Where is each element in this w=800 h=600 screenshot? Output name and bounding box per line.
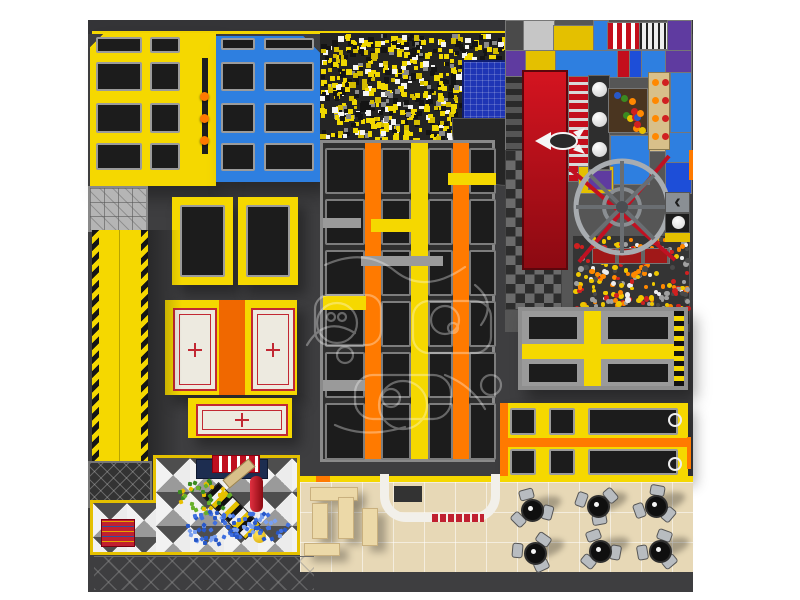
foam-cube	[351, 123, 355, 127]
foam-cube	[455, 51, 459, 55]
foam-cube	[355, 122, 359, 126]
trampoline-bed	[246, 205, 290, 277]
foam-cube	[417, 50, 421, 54]
main-court	[320, 140, 495, 462]
orange-ball	[200, 92, 209, 101]
foam-cube	[449, 49, 453, 53]
foam-cube	[325, 56, 329, 60]
foam-cube	[381, 102, 387, 108]
foam-cube	[430, 89, 434, 93]
trampoline-bed	[381, 403, 411, 460]
abacus-panel	[648, 72, 670, 150]
foam-cube	[402, 92, 407, 97]
pit-ball	[671, 279, 676, 284]
trampoline-bed	[588, 449, 678, 475]
foam-cube	[397, 51, 403, 57]
trampoline-bed	[549, 408, 575, 435]
foam-cube	[400, 45, 405, 50]
foam-cube	[428, 114, 432, 118]
foam-cube	[441, 106, 445, 110]
foam-cube	[343, 134, 347, 138]
foam-cube	[410, 94, 414, 98]
pit-ball	[654, 271, 659, 276]
foam-cube	[386, 99, 390, 103]
pit-ball	[652, 282, 656, 286]
pit-ball	[601, 302, 606, 307]
trampoline-bed	[150, 62, 180, 91]
foam-cube	[321, 69, 326, 74]
foam-cube	[425, 53, 429, 57]
trampoline-bed	[469, 403, 496, 460]
foam-cube	[338, 36, 344, 42]
foam-bit	[237, 517, 242, 522]
foam-cube	[438, 96, 444, 102]
crossing-pad-gray	[323, 218, 361, 228]
pit-ball	[578, 285, 583, 290]
pit-ball	[625, 292, 630, 297]
trampoline-bed	[381, 301, 411, 347]
trampoline-bed	[150, 103, 180, 133]
trampoline-bed	[381, 148, 411, 194]
foam-cube	[426, 130, 431, 135]
pit-ball	[589, 269, 594, 274]
foam-cube	[330, 76, 335, 81]
pit-ball	[630, 279, 634, 283]
play-panel-stripe-red	[607, 22, 641, 50]
foam-cube	[403, 75, 408, 80]
color-ball	[634, 121, 641, 128]
court-cross	[266, 349, 280, 351]
pit-ball	[667, 283, 672, 288]
foam-cube	[371, 77, 375, 81]
pit-ball	[685, 247, 689, 251]
trampoline-bed	[221, 143, 255, 171]
pit-ball	[618, 290, 623, 295]
court-beam-orange	[365, 143, 381, 459]
foam-cube	[350, 82, 356, 88]
foam-cube	[321, 44, 326, 49]
foam-cube	[353, 49, 357, 53]
foam-cube	[450, 95, 454, 99]
foam-cube	[346, 114, 351, 119]
foam-cube	[441, 42, 447, 48]
trampoline-bed	[264, 143, 314, 171]
foam-cube	[364, 50, 369, 55]
foam-cube	[391, 78, 396, 83]
bench	[362, 508, 378, 546]
foam-cube	[360, 130, 365, 135]
foam-cube	[441, 110, 445, 114]
foam-cube	[492, 41, 496, 45]
pit-ball	[630, 287, 634, 291]
abacus-bead	[662, 97, 669, 104]
pit-ball	[619, 283, 624, 288]
foam-cube	[335, 115, 339, 119]
trampoline-bed	[96, 37, 142, 53]
foam-cube	[421, 40, 426, 45]
pit-ball	[664, 296, 669, 301]
foam-bit	[252, 520, 257, 525]
bench	[338, 497, 354, 539]
trampoline-bed	[221, 38, 255, 50]
anchor-ring	[668, 413, 682, 427]
foam-cube	[333, 91, 338, 96]
foam-cube	[338, 131, 343, 136]
foam-cube	[383, 34, 387, 38]
foam-cube	[359, 38, 364, 43]
foam-cube	[341, 60, 347, 66]
orange-ball	[200, 114, 209, 123]
trampoline-bed	[549, 449, 575, 475]
foam-cube	[361, 101, 365, 105]
foam-cube	[404, 135, 408, 139]
pit-ball	[584, 275, 588, 279]
foam-cube	[451, 38, 457, 44]
pit-ball	[641, 301, 645, 305]
hazard-chevron-strip	[141, 230, 148, 463]
foam-cube	[345, 83, 349, 87]
crossing-pad-yellow	[448, 173, 496, 185]
foam-cube	[347, 50, 351, 54]
trampoline-bed	[325, 250, 365, 296]
foam-cube	[375, 72, 380, 77]
pit-ball	[661, 284, 666, 289]
abacus-bead	[652, 133, 659, 140]
foam-cube	[404, 42, 409, 47]
foam-cube	[346, 34, 351, 39]
trampoline-bed	[150, 37, 180, 53]
foam-cube	[323, 61, 327, 65]
chevron-left-icon: ‹	[665, 192, 690, 213]
pit-ball	[576, 272, 581, 277]
abacus-bead	[652, 97, 659, 104]
trampoline-bed	[469, 250, 496, 296]
foam-cube	[370, 100, 374, 104]
color-ball	[629, 98, 636, 105]
bench	[304, 543, 340, 556]
pit-ball	[648, 273, 653, 278]
foam-bit	[218, 493, 222, 497]
foam-cube	[487, 47, 492, 52]
foam-cube	[333, 41, 338, 46]
pit-ball	[685, 271, 690, 276]
trampoline-bed	[96, 62, 142, 91]
foam-cube	[388, 47, 393, 52]
foam-cube	[349, 96, 354, 101]
orange-beam	[508, 438, 688, 447]
color-ball-panel	[608, 88, 648, 133]
foam-cube	[432, 125, 438, 131]
rocket-decoration	[533, 124, 585, 158]
square-trampoline	[238, 197, 298, 285]
trampoline-bed	[428, 148, 453, 194]
foam-cube	[384, 77, 390, 83]
foam-cube	[404, 125, 410, 131]
foam-cube	[450, 59, 454, 63]
dodgeball-court	[251, 308, 295, 391]
foam-cube	[338, 105, 343, 110]
foam-cube	[328, 68, 332, 72]
walkway-shadow	[148, 230, 182, 470]
foam-cube	[346, 69, 351, 74]
trampoline-bed	[264, 38, 314, 50]
pit-ball	[680, 256, 684, 260]
foam-cube	[423, 93, 428, 98]
foam-bit	[241, 525, 246, 530]
fence-crosshatch	[94, 556, 314, 590]
foam-bit	[213, 516, 217, 520]
foam-cube	[379, 111, 383, 115]
foam-cube	[327, 46, 331, 50]
foam-cube	[371, 88, 376, 93]
sphere	[592, 112, 607, 127]
foam-cube	[419, 128, 423, 132]
sphere	[592, 82, 607, 97]
hazard-chevron-strip	[92, 230, 99, 463]
foam-cube	[492, 55, 496, 59]
foam-cube	[334, 47, 339, 52]
pit-ball	[599, 278, 603, 282]
foam-cube	[425, 104, 429, 108]
play-wheel	[565, 150, 679, 264]
foam-cube	[408, 37, 412, 41]
foam-cube	[340, 116, 345, 121]
foam-cube	[388, 93, 393, 98]
foam-cube	[429, 38, 434, 43]
trampoline-bed	[469, 352, 496, 398]
foam-cube	[344, 55, 349, 60]
trampoline-bed	[469, 301, 496, 347]
foam-cube	[320, 134, 325, 139]
foam-cube	[385, 70, 391, 76]
foam-cube	[382, 84, 388, 90]
pit-ball	[625, 297, 630, 302]
foam-cube	[384, 116, 389, 121]
foam-cube	[414, 35, 419, 40]
foam-cube	[472, 41, 478, 47]
pit-ball	[664, 291, 670, 297]
pit-ball	[659, 295, 663, 299]
foam-cube	[362, 79, 367, 84]
trampoline-bed	[96, 103, 142, 133]
pit-ball	[583, 265, 589, 271]
pit-ball	[612, 265, 617, 270]
color-ball	[614, 92, 621, 99]
court-beam-yellow	[411, 143, 428, 459]
abacus-bead	[662, 133, 669, 140]
foam-bit	[188, 482, 192, 486]
foam-cube	[351, 40, 355, 44]
foam-cube	[381, 131, 386, 136]
trampoline-bed	[428, 352, 453, 398]
foam-cube	[423, 61, 429, 67]
foam-cube	[344, 128, 348, 132]
pit-ball	[604, 270, 609, 275]
pit-ball	[683, 292, 688, 297]
foam-cube	[377, 84, 381, 88]
trampoline-bed	[606, 315, 670, 341]
dodgeball-court	[196, 404, 288, 436]
play-panel-blue	[670, 72, 692, 134]
bench	[312, 503, 328, 539]
trampoline-bed	[381, 352, 411, 398]
foam-cube	[321, 114, 325, 118]
trampoline-bed	[428, 199, 453, 245]
foam-cube	[411, 109, 415, 113]
foam-cube	[450, 64, 454, 68]
foam-cube	[395, 89, 400, 94]
trampoline-bed	[527, 315, 579, 341]
foam-cube	[368, 37, 373, 42]
trampoline-bed	[221, 62, 255, 91]
foam-cube	[434, 106, 439, 111]
pit-ball	[650, 302, 654, 306]
trampoline-bed	[527, 362, 579, 384]
crossing-pad-gray	[361, 256, 443, 266]
foam-cube	[430, 117, 435, 122]
foam-cube	[354, 106, 358, 110]
foam-cube	[357, 71, 362, 76]
foam-cube	[391, 119, 396, 124]
yellow-walkway	[92, 230, 148, 463]
foam-cube	[365, 88, 369, 92]
trampoline-bed	[325, 403, 365, 460]
foam-cube	[365, 105, 371, 111]
hazard-strip	[674, 311, 684, 386]
foam-cube	[392, 69, 397, 74]
blue-trampoline-block	[216, 36, 320, 182]
pit-ball	[685, 299, 690, 304]
foam-cube	[358, 114, 364, 120]
dodgeball-court-horizontal	[188, 398, 292, 438]
pit-ball	[606, 299, 611, 304]
foam-cube	[353, 128, 358, 133]
orange-ball	[200, 136, 209, 145]
foam-cube	[455, 41, 460, 46]
yellow-step	[665, 233, 690, 242]
foam-cube	[411, 76, 416, 81]
mascot-head	[672, 216, 685, 229]
foam-cube	[498, 48, 502, 52]
foam-cube	[355, 90, 359, 94]
foam-cube	[431, 67, 436, 72]
scaffold-platform-top	[88, 186, 148, 232]
foam-bit	[235, 535, 239, 539]
foam-cube	[465, 38, 470, 43]
dodgeball-courts	[165, 300, 297, 395]
foam-cube	[445, 102, 451, 108]
foam-bit	[196, 486, 200, 490]
foam-cube	[398, 69, 402, 73]
foam-cube	[438, 48, 442, 52]
foam-cube	[344, 109, 348, 113]
render-canvas: ‹	[0, 0, 800, 600]
foam-cube	[336, 85, 341, 90]
orange-divider	[219, 300, 245, 395]
foam-cube	[396, 126, 400, 130]
door-marker	[689, 150, 693, 180]
foam-cube	[326, 135, 330, 139]
foam-cube	[345, 87, 350, 92]
pit-ball	[626, 272, 630, 276]
pit-ball	[649, 295, 655, 301]
abacus-bead	[662, 115, 669, 122]
foam-cube	[444, 54, 449, 59]
pit-ball	[611, 281, 616, 286]
foam-cube	[462, 49, 466, 53]
trampoline-bed	[325, 148, 365, 194]
foam-cube	[440, 121, 444, 125]
yellow-trampoline-block	[90, 33, 216, 186]
foam-cube	[455, 87, 459, 91]
pit-ball	[616, 301, 621, 306]
foam-cube	[402, 61, 407, 66]
trampoline-bed	[221, 103, 255, 133]
foam-cube	[478, 45, 483, 50]
trampoline-bed	[606, 362, 670, 384]
pit-ball	[682, 280, 686, 284]
play-panel-stripe-dot	[639, 22, 669, 50]
foam-cube	[366, 63, 371, 68]
foam-cube	[451, 80, 455, 84]
foam-cube	[420, 81, 424, 85]
foam-cube	[416, 73, 422, 79]
foam-cube	[479, 35, 484, 40]
foam-cube	[447, 129, 451, 133]
foam-cube	[371, 44, 375, 48]
foam-cube	[406, 112, 411, 117]
foam-bit	[202, 507, 206, 511]
trampoline-bed	[428, 403, 453, 460]
foam-cube	[368, 72, 373, 77]
trampoline-bed	[264, 62, 314, 91]
foam-cube	[402, 35, 407, 40]
abacus-bead	[662, 79, 669, 86]
playground-structure: ‹	[505, 20, 690, 332]
square-trampoline-block	[518, 307, 688, 390]
trampoline-bed	[180, 205, 225, 277]
crossing-pad-gray	[323, 380, 365, 391]
foam-cube	[335, 96, 339, 100]
foam-cube	[384, 123, 389, 128]
foam-cube	[353, 65, 358, 70]
foam-cube	[366, 110, 371, 115]
play-panel-dim	[505, 20, 525, 52]
foam-cube	[447, 133, 452, 138]
color-ball	[639, 127, 646, 134]
foam-cube	[321, 75, 325, 79]
foam-bit	[191, 506, 196, 511]
color-ball	[637, 110, 644, 117]
foam-cube	[354, 94, 358, 98]
play-panel-purple	[667, 20, 692, 52]
pit-ball	[644, 285, 648, 289]
foam-cube	[375, 41, 381, 47]
trampoline-bed	[469, 148, 496, 194]
long-trampoline-row	[500, 403, 688, 478]
pit-ball	[589, 279, 593, 283]
foam-cube	[433, 49, 437, 53]
foam-cube	[371, 108, 375, 112]
foam-cube	[419, 53, 423, 57]
court-beam-orange	[453, 143, 469, 459]
yellow-beam	[522, 344, 684, 359]
foam-bit	[199, 513, 203, 517]
play-panel-silver	[523, 20, 555, 52]
trampoline-bed	[510, 408, 536, 435]
foam-cube	[439, 73, 444, 78]
foam-cube	[320, 108, 324, 112]
